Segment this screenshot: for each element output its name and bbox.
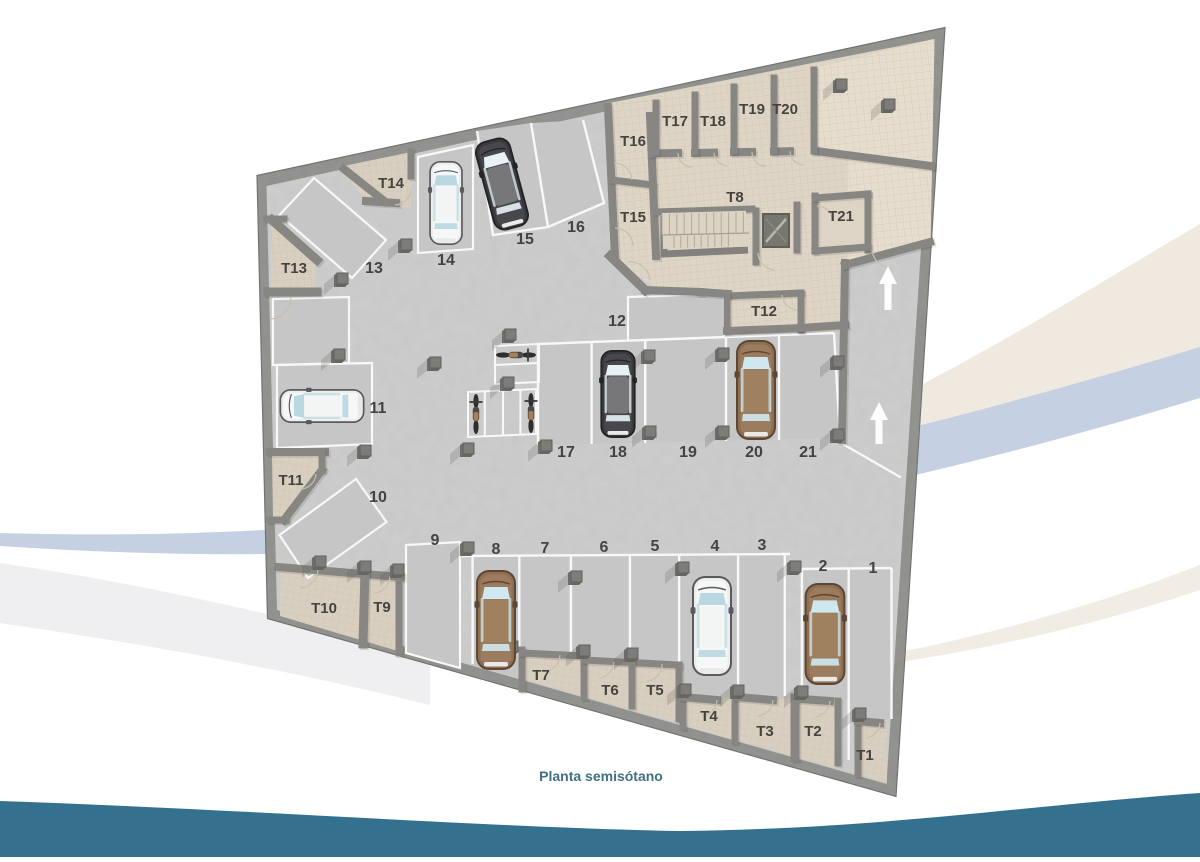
svg-text:T7: T7 [532,667,550,684]
svg-text:16: 16 [567,219,585,236]
svg-text:T13: T13 [281,260,307,277]
svg-text:1: 1 [869,560,878,577]
svg-text:T4: T4 [700,708,718,725]
svg-text:T18: T18 [700,113,726,130]
svg-text:T6: T6 [601,682,619,699]
svg-text:T20: T20 [772,101,798,118]
svg-text:13: 13 [365,260,383,277]
svg-text:3: 3 [758,537,767,554]
svg-text:19: 19 [679,444,697,461]
svg-text:12: 12 [608,313,626,330]
svg-text:10: 10 [369,489,387,506]
svg-text:9: 9 [431,532,440,549]
svg-text:T10: T10 [311,600,337,617]
svg-text:T21: T21 [828,208,854,225]
svg-text:T5: T5 [646,682,664,699]
svg-text:T17: T17 [662,113,688,130]
svg-text:14: 14 [437,252,455,269]
svg-text:T15: T15 [620,209,646,226]
svg-text:T3: T3 [756,723,774,740]
svg-text:T8: T8 [726,189,744,206]
svg-text:11: 11 [370,400,387,417]
svg-text:20: 20 [745,444,763,461]
svg-text:7: 7 [541,540,550,557]
svg-text:6: 6 [600,539,609,556]
svg-text:21: 21 [799,444,817,461]
svg-text:T12: T12 [751,303,777,320]
svg-text:T1: T1 [856,747,874,764]
svg-text:T9: T9 [373,599,391,616]
svg-text:Planta semisótano: Planta semisótano [539,768,663,784]
svg-text:T16: T16 [620,133,646,150]
svg-text:T11: T11 [278,472,303,489]
svg-text:4: 4 [711,538,720,555]
svg-text:17: 17 [557,444,575,461]
svg-text:2: 2 [819,558,828,575]
svg-text:5: 5 [651,538,660,555]
svg-text:T2: T2 [804,723,822,740]
svg-text:T14: T14 [378,175,405,192]
svg-text:T19: T19 [739,101,765,118]
svg-text:15: 15 [516,231,534,248]
svg-text:18: 18 [609,444,627,461]
svg-text:8: 8 [492,541,501,558]
